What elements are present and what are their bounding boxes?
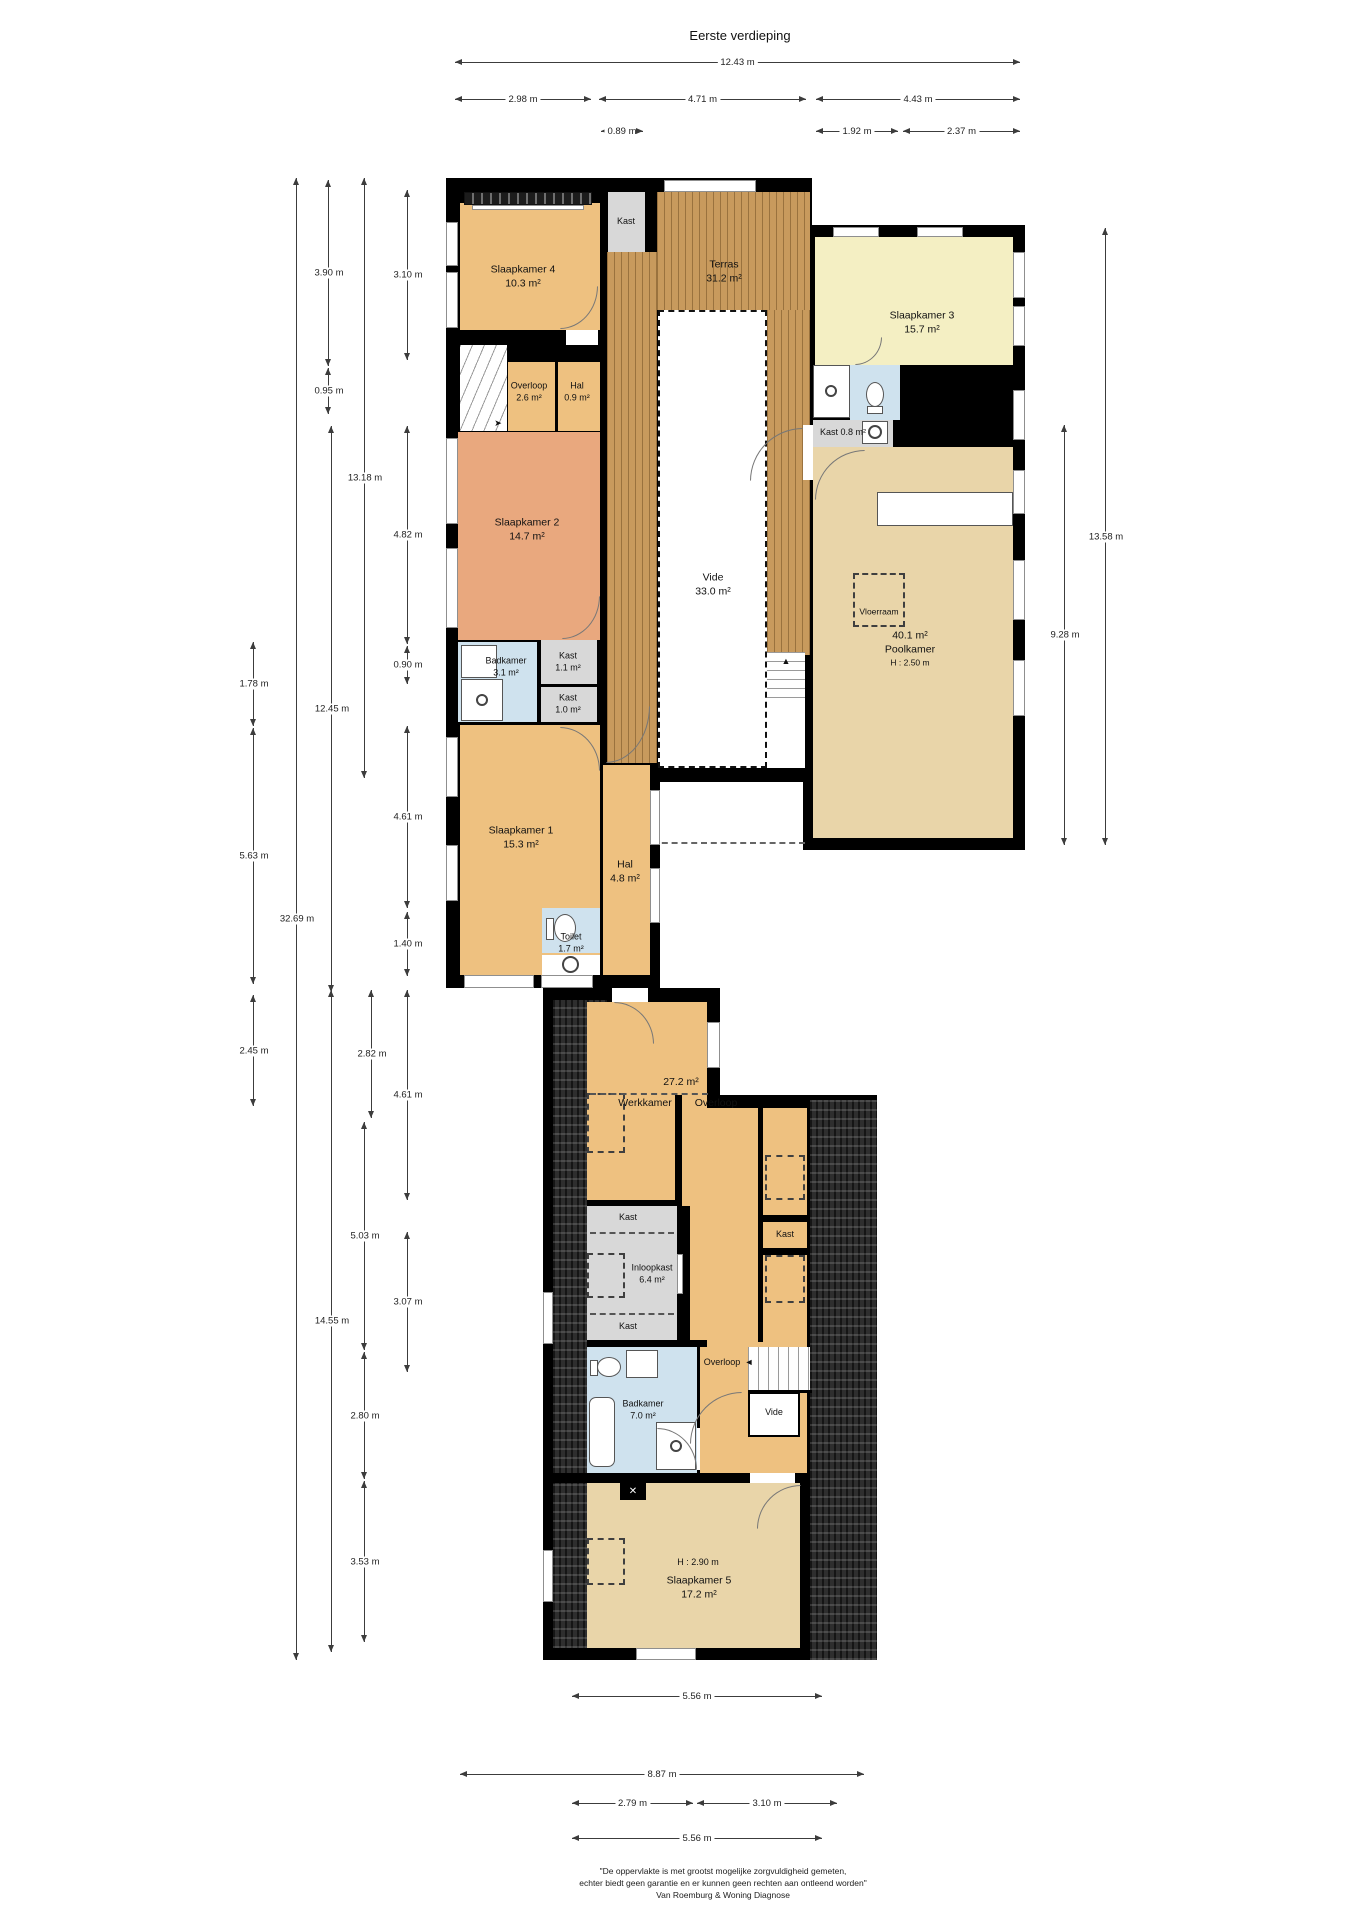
door-opening	[677, 1254, 683, 1294]
window	[543, 1292, 553, 1344]
room-label-kast-08: Kast 0.8 m²	[820, 427, 866, 439]
dimension-line: 3.10 m	[407, 190, 408, 360]
room-terras	[767, 310, 810, 655]
room-label-slaapkamer-4: Slaapkamer 410.3 m²	[491, 263, 556, 290]
floor-plan: Eerste verdieping ▲ ➤	[0, 0, 1358, 1920]
room-label-kast-b: Kast	[619, 1321, 637, 1333]
closet-dashed-line	[590, 1313, 674, 1315]
counter	[877, 492, 1013, 526]
room-label-werkkamer: Werkkamer	[618, 1097, 671, 1111]
dimension-line: 5.63 m	[253, 728, 254, 984]
shower-drain	[825, 385, 837, 397]
window	[1013, 390, 1025, 440]
dimension-line: 4.43 m	[816, 99, 1020, 100]
wall	[675, 1095, 682, 1202]
room-label-slaapkamer-2: Slaapkamer 214.7 m²	[495, 516, 560, 543]
window	[472, 205, 584, 210]
room-label-slaapkamer-5: Slaapkamer 517.2 m²	[667, 1574, 732, 1601]
room-label-kast-a: Kast	[619, 1212, 637, 1224]
window	[446, 438, 458, 524]
dimension-line: 8.87 m	[460, 1774, 864, 1775]
skylight-box: ✕	[620, 1483, 646, 1500]
window	[446, 737, 458, 797]
room-label-kast-top: Kast	[617, 216, 635, 228]
window	[446, 845, 458, 901]
dimension-line: 3.10 m	[697, 1803, 837, 1804]
window	[541, 975, 593, 988]
dimension-line: 2.45 m	[253, 995, 254, 1106]
bathtub	[589, 1397, 615, 1467]
shower-drain	[476, 694, 488, 706]
window	[650, 790, 660, 845]
door-opening	[750, 1473, 795, 1483]
window	[833, 227, 879, 237]
dimension-line: 1.92 m	[816, 131, 898, 132]
room-label-hal-09: Hal0.9 m²	[564, 380, 590, 403]
window	[664, 180, 756, 192]
room-label-vide-small: Vide	[765, 1407, 783, 1419]
door-opening	[803, 425, 813, 480]
window	[1013, 306, 1025, 346]
dimension-line: 4.71 m	[599, 99, 806, 100]
room-terras	[607, 252, 657, 763]
arrow-left-icon: ◄	[745, 1357, 754, 1369]
window	[1013, 660, 1025, 716]
room-label-werkkamer-area: 27.2 m²	[663, 1076, 699, 1090]
disclaimer-line-3: Van Roemburg & Woning Diagnose	[423, 1890, 1023, 1902]
dimension-line: 0.90 m	[407, 646, 408, 684]
window	[1013, 470, 1025, 514]
dimension-line: 9.28 m	[1064, 425, 1065, 845]
closet-dashed-line	[590, 1232, 674, 1234]
window	[446, 548, 458, 628]
wall	[763, 1248, 807, 1255]
room-vide	[658, 310, 767, 768]
round-sink	[562, 956, 579, 973]
dimension-line: 5.56 m	[572, 1838, 822, 1839]
dimension-line: 4.61 m	[407, 990, 408, 1200]
room-label-badkamer-31: Badkamer3.1 m²	[485, 655, 526, 678]
dimension-line: 2.98 m	[455, 99, 591, 100]
room-label-badkamer-70: Badkamer7.0 m²	[622, 1398, 663, 1421]
door-opening	[612, 988, 648, 1002]
room-slaapkamer-3	[815, 237, 1013, 365]
room-terras	[657, 192, 810, 310]
dimension-line: 5.56 m	[572, 1696, 822, 1697]
dimension-line: 32.69 m	[296, 178, 297, 1660]
room-label-inloopkast: Inloopkast6.4 m²	[631, 1262, 672, 1285]
dimension-line: 14.55 m	[331, 990, 332, 1652]
dimension-line: 2.80 m	[364, 1352, 365, 1479]
window	[464, 975, 534, 988]
dimension-line: 0.95 m	[328, 368, 329, 414]
window	[446, 222, 458, 266]
dimension-line: 13.58 m	[1105, 228, 1106, 845]
dimension-line: 13.18 m	[364, 178, 365, 778]
room-label-vloerraam: Vloerraam	[859, 606, 898, 617]
washing-machine-drum	[868, 425, 882, 439]
room-label-hal-48: Hal4.8 m²	[610, 858, 640, 885]
dimension-line: 1.78 m	[253, 642, 254, 726]
room-label-vide: Vide33.0 m²	[695, 571, 731, 598]
closet-outline	[587, 1253, 625, 1298]
dimension-line: 4.82 m	[407, 426, 408, 644]
dimension-line: 1.40 m	[407, 912, 408, 976]
window	[446, 272, 458, 328]
vloerraam-outline	[853, 573, 905, 627]
dimension-line: 2.37 m	[903, 131, 1020, 132]
window	[917, 227, 963, 237]
dimension-line: 3.53 m	[364, 1481, 365, 1642]
room-label-kast-10: Kast1.0 m²	[555, 692, 581, 715]
dimension-line: 3.07 m	[407, 1232, 408, 1372]
room-label-slaapkamer-1: Slaapkamer 115.3 m²	[489, 824, 554, 851]
dimension-line: 2.79 m	[572, 1803, 693, 1804]
dimension-line: 2.82 m	[371, 990, 372, 1118]
room-label-overloop-main: Overloop	[695, 1097, 738, 1111]
window	[707, 1022, 720, 1068]
window	[650, 868, 660, 923]
room-label-overloop-small: Overloop	[704, 1357, 741, 1369]
room-label-slaapkamer-5-height: H : 2.90 m	[677, 1557, 719, 1569]
window	[543, 1550, 553, 1602]
wall	[587, 1340, 707, 1347]
window	[1013, 560, 1025, 620]
toilet-tank	[867, 406, 883, 414]
room-label-kast-11: Kast1.1 m²	[555, 650, 581, 673]
sloped-roof-area	[810, 1100, 877, 1660]
ceiling-height-dashed-line	[590, 1093, 708, 1095]
room-label-kast-c: Kast	[776, 1229, 794, 1241]
skylight-cross-icon: ✕	[629, 1486, 637, 1497]
dimension-line: 0.89 m	[601, 131, 643, 132]
wardrobe-outline	[765, 1255, 805, 1303]
wardrobe-outline	[587, 1538, 625, 1585]
disclaimer-line-2: echter biedt geen garantie en er kunnen …	[423, 1878, 1023, 1890]
dimension-line: 3.90 m	[328, 180, 329, 366]
stairs-treads	[748, 1347, 810, 1392]
sloped-roof-area	[553, 1000, 587, 1648]
toilet-icon	[866, 382, 884, 407]
dimension-line: 5.03 m	[364, 1122, 365, 1350]
room-label-poolkamer: 40.1 m²Poolkamer H : 2.50 m	[885, 630, 935, 671]
door-opening	[697, 1428, 700, 1470]
stairs-up-arrow-icon: ▲	[782, 656, 791, 668]
window	[1013, 252, 1025, 298]
disclaimer: "De oppervlakte is met grootst mogelijke…	[423, 1866, 1023, 1902]
wardrobe-outline	[765, 1155, 805, 1200]
dimension-line: 12.45 m	[331, 426, 332, 992]
dimension-line: 12.43 m	[455, 62, 1020, 63]
wall	[763, 1215, 807, 1222]
stairs-turn-arrow-icon: ➤	[494, 418, 502, 430]
room-label-toilet: Toilet1.7 m²	[558, 931, 584, 954]
disclaimer-line-1: "De oppervlakte is met grootst mogelijke…	[423, 1866, 1023, 1878]
door-opening	[566, 330, 598, 345]
dimension-line: 4.61 m	[407, 726, 408, 908]
room-label-slaapkamer-3: Slaapkamer 315.7 m²	[890, 309, 955, 336]
room-label-terras: Terras31.2 m²	[706, 258, 742, 285]
toilet-tank	[546, 918, 554, 940]
boundary-dashed-line	[652, 842, 805, 844]
toilet-icon	[597, 1357, 621, 1377]
radiator-grille	[464, 192, 592, 205]
window	[636, 1648, 696, 1660]
page-title: Eerste verdieping	[440, 28, 1040, 43]
sink	[626, 1350, 658, 1378]
room-label-overloop-26: Overloop2.6 m²	[511, 380, 548, 403]
wall	[758, 1108, 763, 1342]
